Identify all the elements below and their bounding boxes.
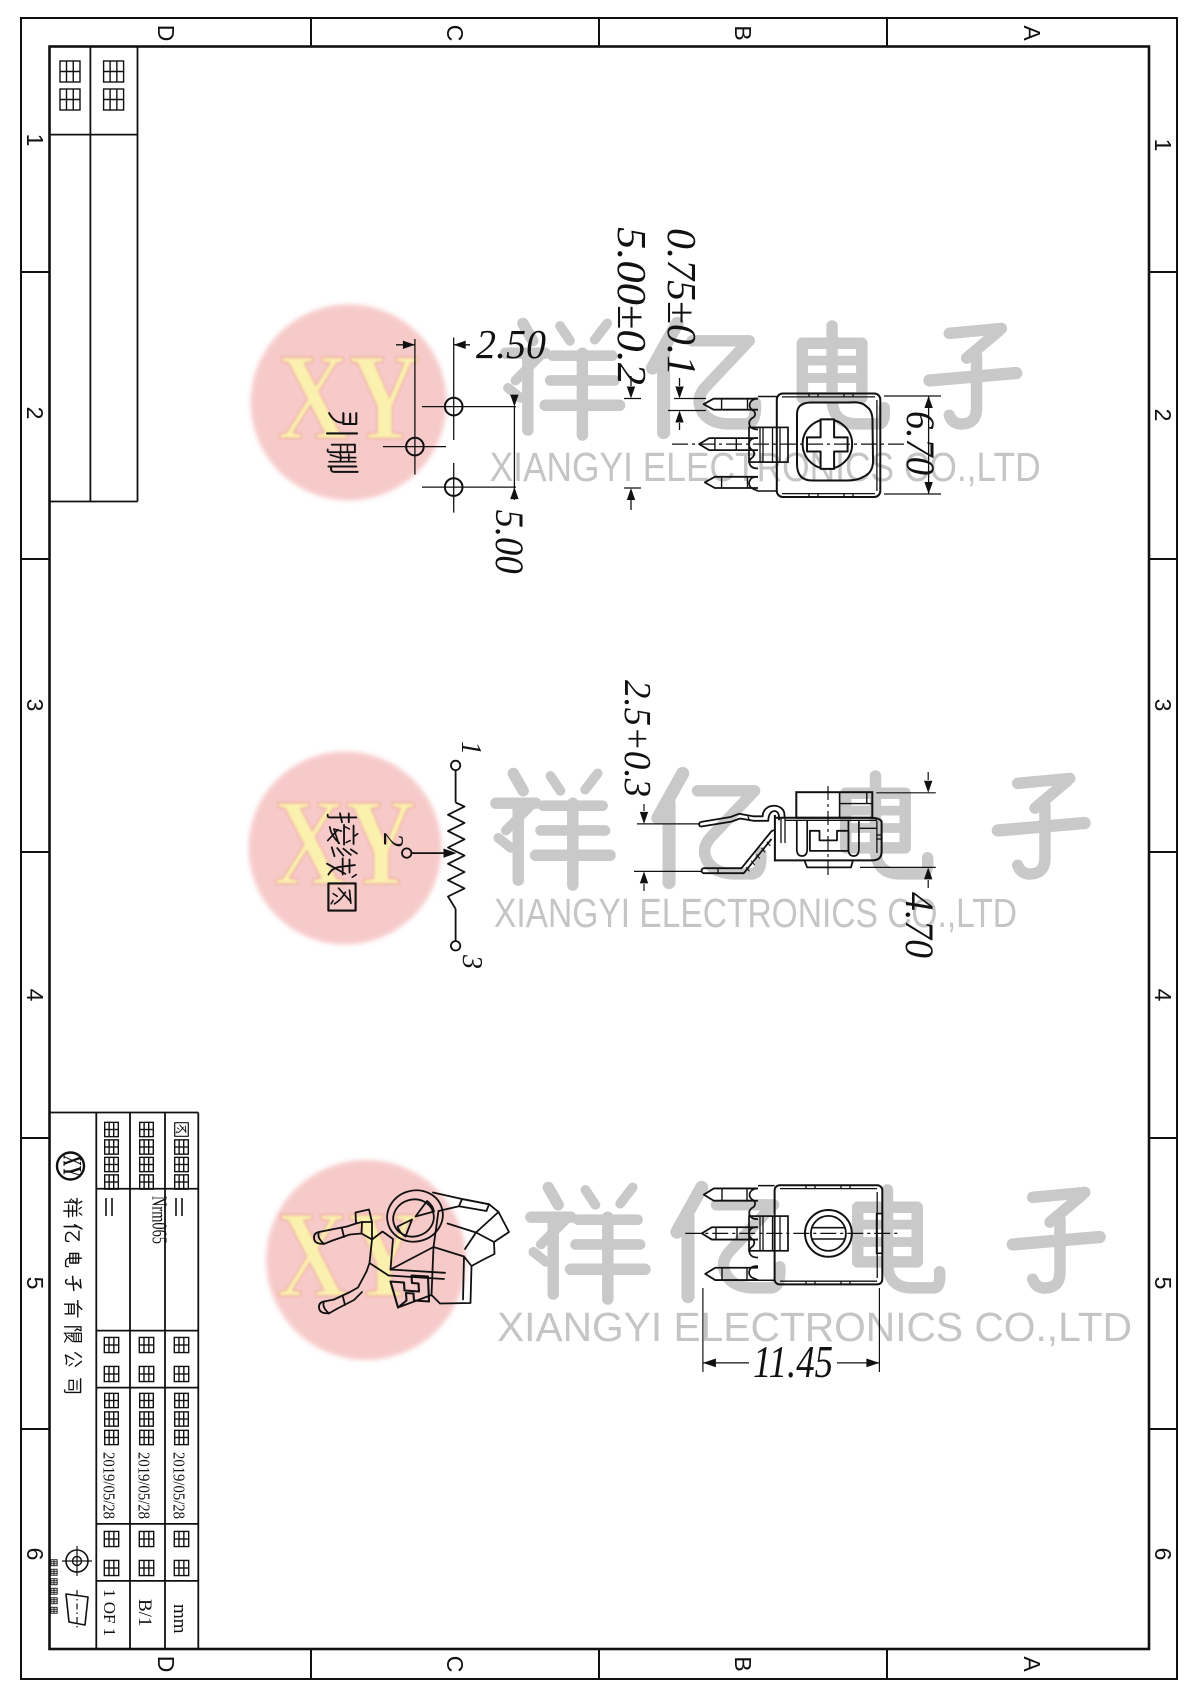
- svg-text:B/1: B/1: [134, 1599, 155, 1626]
- svg-text:A: A: [1019, 25, 1045, 41]
- svg-text:1: 1: [22, 134, 48, 147]
- svg-text:B: B: [730, 25, 756, 40]
- svg-text:6: 6: [22, 1548, 48, 1561]
- svg-text:4: 4: [1150, 989, 1176, 1002]
- svg-text:5.00±0.2: 5.00±0.2: [609, 227, 655, 385]
- svg-text:C: C: [442, 25, 468, 42]
- svg-text:3: 3: [22, 699, 48, 712]
- svg-text:2: 2: [377, 833, 408, 847]
- svg-text:3: 3: [456, 954, 487, 969]
- svg-text:1 OF 1: 1 OF 1: [100, 1589, 119, 1636]
- svg-text:2: 2: [22, 407, 48, 420]
- svg-text:2019/05/28: 2019/05/28: [135, 1452, 154, 1519]
- svg-text:B: B: [730, 1656, 756, 1671]
- svg-text:2019/05/28: 2019/05/28: [100, 1452, 119, 1519]
- svg-text:5: 5: [22, 1277, 48, 1290]
- svg-text:1: 1: [1150, 139, 1176, 152]
- svg-text:6.70: 6.70: [898, 411, 943, 475]
- svg-text:C: C: [442, 1656, 468, 1673]
- svg-text:0.75±0.1: 0.75±0.1: [659, 228, 705, 376]
- svg-text:A: A: [1019, 1656, 1045, 1672]
- svg-text:1: 1: [455, 741, 486, 755]
- svg-text:2019/05/28: 2019/05/28: [170, 1452, 189, 1519]
- svg-text:mm: mm: [169, 1604, 190, 1634]
- svg-text:Nrm065: Nrm065: [148, 1196, 172, 1244]
- svg-text:5.00: 5.00: [487, 510, 532, 574]
- svg-text:11.45: 11.45: [753, 1336, 833, 1387]
- svg-text:XIANGYI ELECTRONICS CO.,LTD: XIANGYI ELECTRONICS CO.,LTD: [490, 444, 1041, 490]
- svg-text:6: 6: [1150, 1548, 1176, 1561]
- svg-text:D: D: [153, 25, 179, 42]
- svg-text:2: 2: [1150, 409, 1176, 422]
- svg-text:2.50: 2.50: [476, 321, 546, 367]
- svg-text:3: 3: [1150, 699, 1176, 712]
- svg-text:XY: XY: [58, 1155, 87, 1177]
- svg-text:5: 5: [1150, 1277, 1176, 1290]
- svg-text:4: 4: [22, 989, 48, 1002]
- svg-text:D: D: [153, 1656, 179, 1673]
- svg-text:4.70: 4.70: [897, 892, 942, 958]
- svg-text:2.5+0.3: 2.5+0.3: [616, 680, 658, 797]
